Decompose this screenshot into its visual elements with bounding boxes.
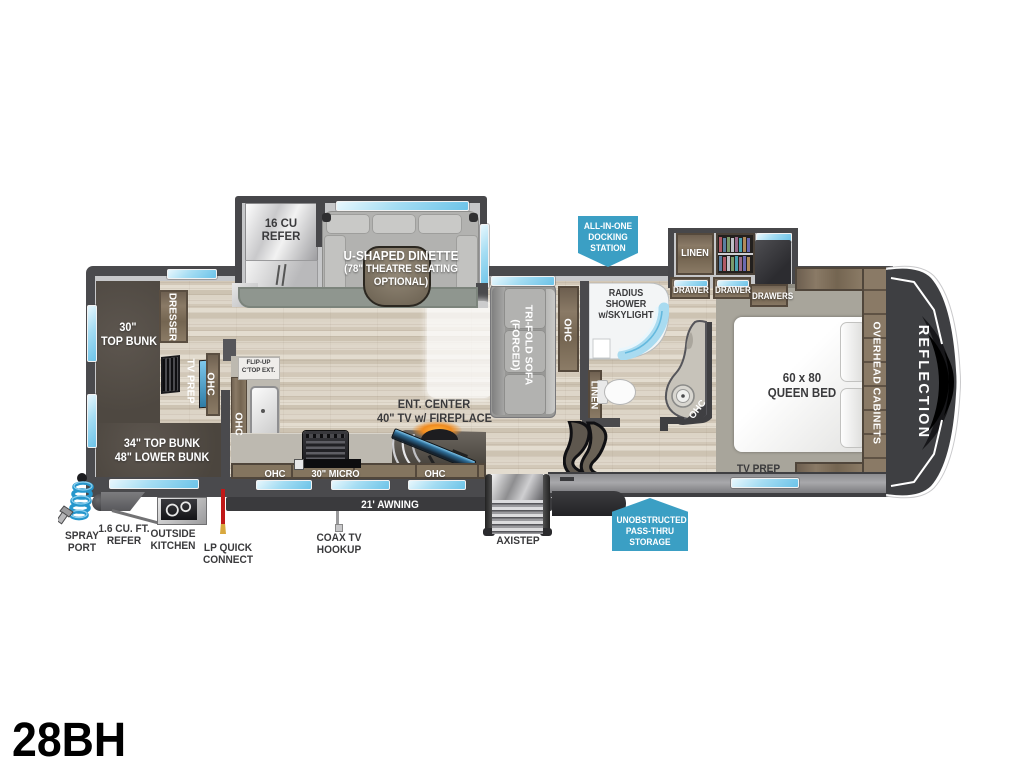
svg-text:REFLECTION: REFLECTION bbox=[915, 325, 931, 440]
